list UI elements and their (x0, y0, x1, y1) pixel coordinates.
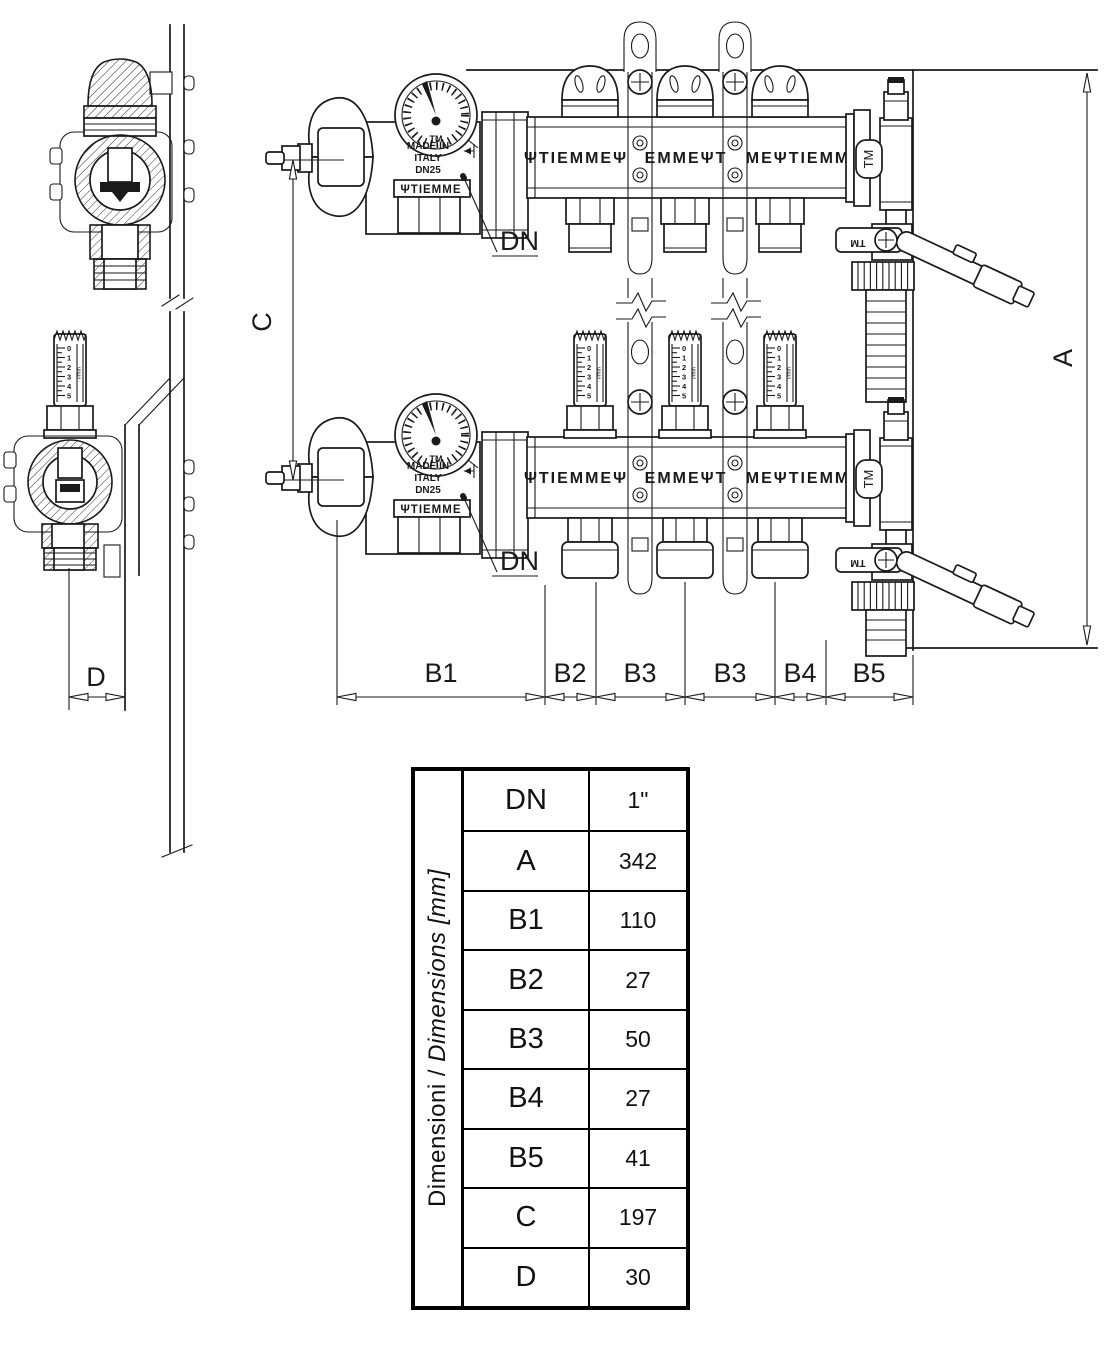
top-left-end (266, 74, 528, 238)
table-row-label: B2 (464, 949, 590, 1008)
table-row-label: B4 (464, 1068, 590, 1127)
dimension-c-label: C (247, 312, 277, 332)
front-view: C A (247, 22, 1097, 705)
side-flow-meter (44, 331, 96, 438)
table-row-value: 110 (590, 890, 686, 949)
table-row-label: D (464, 1247, 590, 1306)
bottom-outlet-2 (657, 518, 713, 578)
table-row-label: C (464, 1187, 590, 1246)
side-valve-section-bottom (4, 331, 122, 570)
dimension-b3b-label: B3 (713, 658, 746, 688)
table-row-label: B1 (464, 890, 590, 949)
table-header-primary: Dimensioni / (424, 1062, 451, 1207)
valve-cap-section (88, 59, 152, 106)
table-row-value: 27 (590, 1068, 686, 1127)
top-valve-cap-2 (657, 66, 713, 117)
clamp-bracket (104, 378, 184, 710)
top-outlet-2 (661, 198, 709, 252)
dimension-b4-label: B4 (783, 658, 816, 688)
dimension-b5-label: B5 (852, 658, 885, 688)
top-valve-cap-3 (752, 66, 808, 117)
dimension-d-label: D (86, 662, 106, 692)
table-row-value: 27 (590, 949, 686, 1008)
bottom-outlet-1 (562, 518, 618, 578)
dimensions-table-header: Dimensioni / Dimensions [mm] (415, 771, 464, 1306)
table-row-value: 1" (590, 771, 686, 830)
dimension-b3-label: B3 (623, 658, 656, 688)
top-hose-barb (866, 290, 906, 402)
dimension-d: D (69, 568, 125, 710)
side-view: D (4, 25, 194, 857)
table-row-value: 342 (590, 830, 686, 889)
top-right-end (836, 77, 1039, 311)
table-row-label: DN (464, 771, 590, 830)
table-row-value: 41 (590, 1128, 686, 1187)
top-manifold-body (524, 117, 850, 198)
table-row-label: B5 (464, 1128, 590, 1187)
dimension-a: A (1048, 73, 1091, 645)
top-outlet-3 (756, 198, 804, 252)
dimension-b1-label: B1 (424, 658, 457, 688)
bottom-flow-meter-1 (564, 331, 616, 438)
top-valve-cap-1 (562, 66, 618, 117)
bottom-left-end (266, 394, 528, 558)
page: { "drawing": { "dimensions": { "c": "C",… (0, 0, 1106, 1359)
table-row-value: 30 (590, 1247, 686, 1306)
bottom-manifold-body (524, 437, 850, 518)
dimension-a-label: A (1048, 349, 1078, 367)
bottom-hose-barb (866, 610, 906, 656)
bottom-outlet-3 (752, 518, 808, 578)
bottom-flow-meter-2 (659, 331, 711, 438)
dimensions-table: Dimensioni / Dimensions [mm] DN 1" A 342… (411, 767, 690, 1310)
table-header-secondary: Dimensions [mm] (424, 869, 451, 1062)
top-outlet-1 (566, 198, 614, 252)
bottom-right-end (836, 397, 1039, 631)
table-row-label: A (464, 830, 590, 889)
table-row-value: 50 (590, 1009, 686, 1068)
bottom-flow-meter-3 (754, 331, 806, 438)
dimension-b2-label: B2 (553, 658, 586, 688)
table-row-label: B3 (464, 1009, 590, 1068)
table-row-value: 197 (590, 1187, 686, 1246)
